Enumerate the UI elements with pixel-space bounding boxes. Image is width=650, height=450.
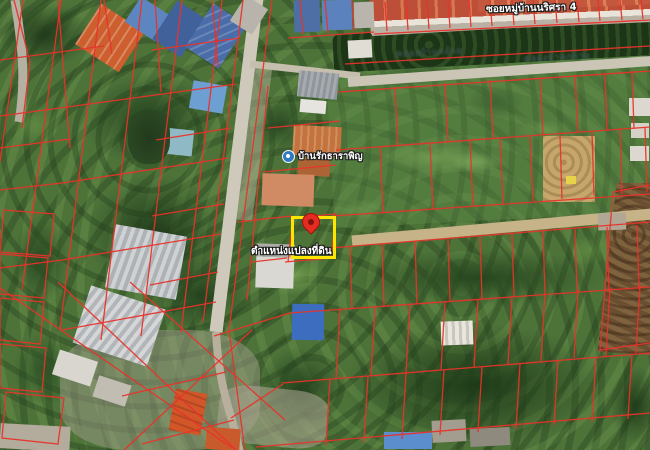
parcel-lines-northwest — [0, 0, 218, 444]
street-label: ซอยหมู่บ้านนริศรา 4 — [486, 0, 577, 17]
parcel-lines-cross-west — [0, 38, 240, 444]
map-canvas[interactable]: บ้านรักธาราพิญ ซอยหมู่บ้านนริศรา 4 คลองบ… — [0, 0, 650, 450]
parcel-lines-field-e — [256, 354, 650, 447]
parcel-lines-townhouses — [288, 0, 650, 38]
poi-marker[interactable]: บ้านรักธาราพิญ — [282, 149, 363, 164]
parcel-lines-field-b — [333, 128, 650, 216]
poi-label: บ้านรักธาราพิญ — [298, 149, 363, 164]
parcel-lines-center-strip — [238, 86, 340, 300]
target-parcel-label: ตำแหน่งแปลงที่ดิน — [251, 244, 332, 259]
parcel-lines-field-a — [336, 71, 650, 150]
poi-dot-icon — [282, 150, 295, 163]
parcel-lines-field-c — [290, 222, 650, 313]
parcel-lines-canal — [338, 46, 650, 92]
